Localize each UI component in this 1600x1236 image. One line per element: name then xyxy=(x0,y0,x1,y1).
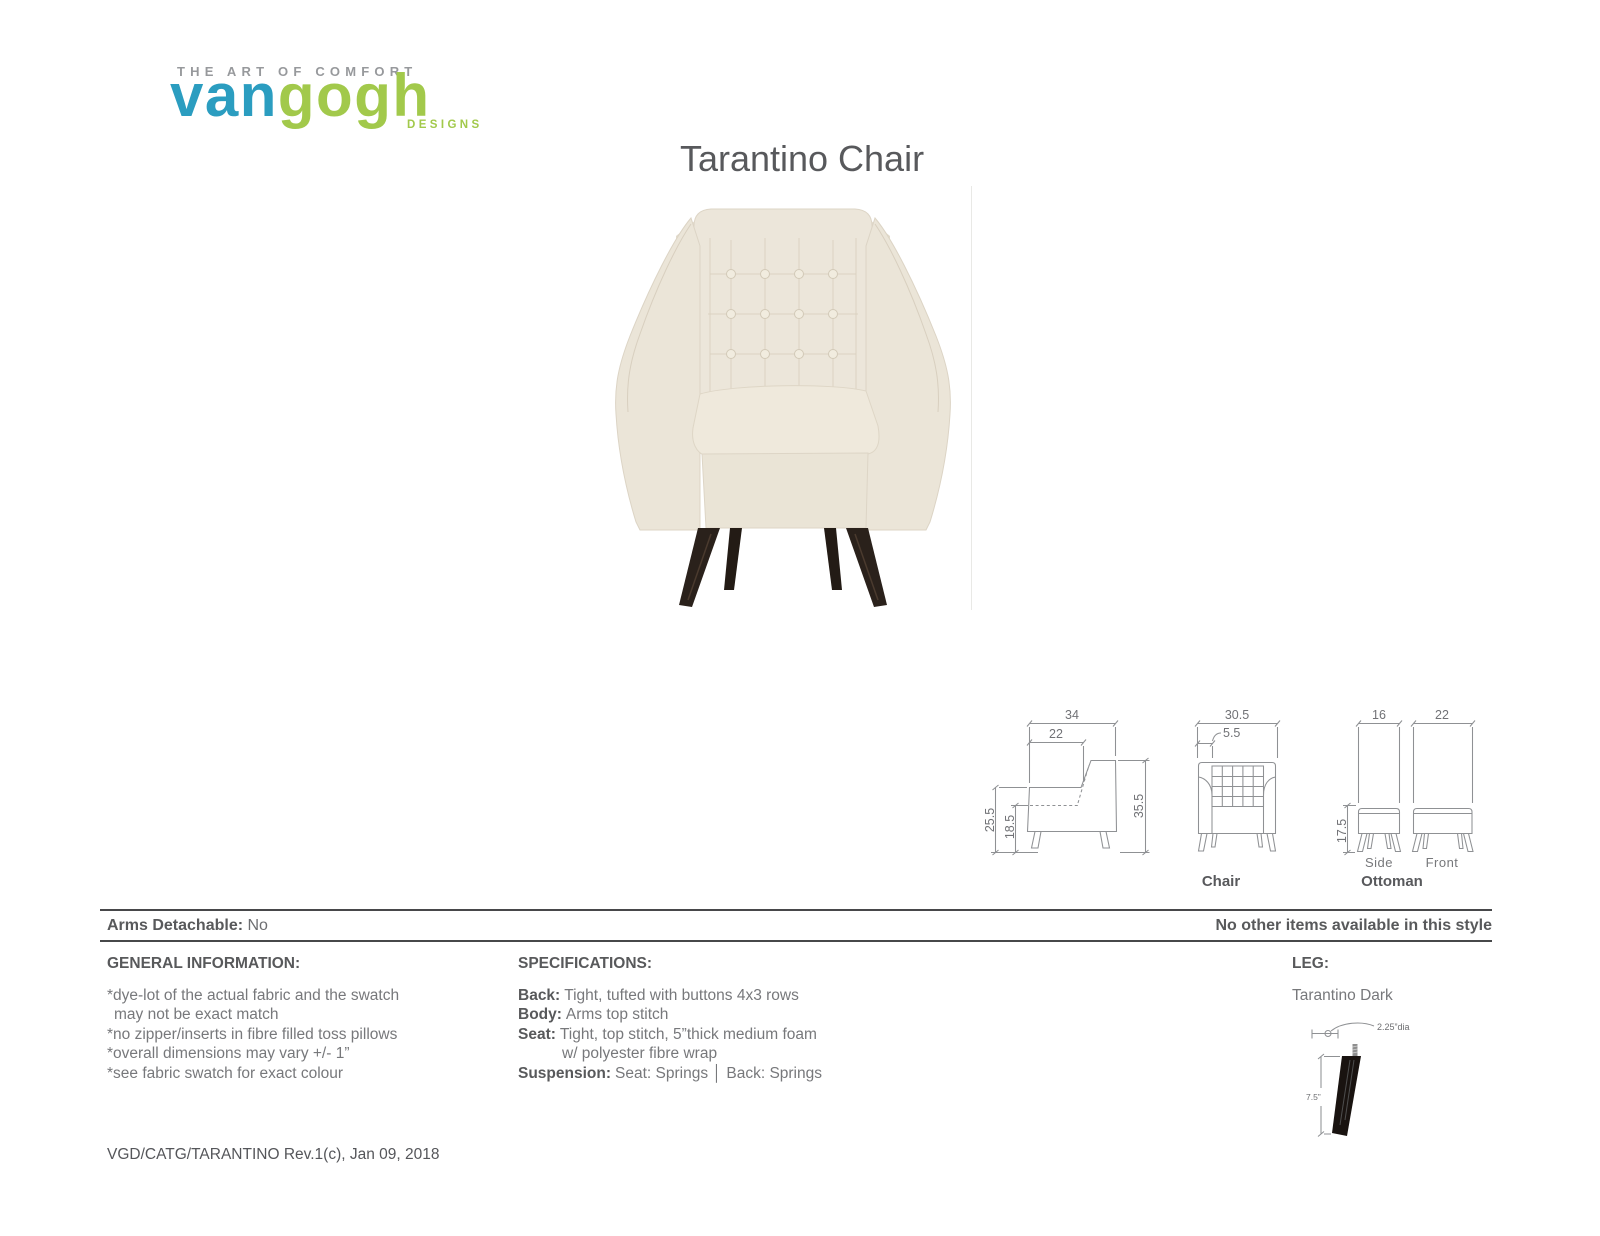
leg-diameter-label: 2.25”dia xyxy=(1377,1022,1410,1032)
spec-row: Suspension:Seat: Springs │ Back: Springs xyxy=(518,1064,958,1084)
seat-base xyxy=(702,453,868,528)
chair-front-view: 30.5 5.5 xyxy=(1195,708,1280,851)
spec-label: Seat: xyxy=(518,1026,556,1043)
ottoman-side-label: Side xyxy=(1365,855,1393,870)
spec-row-continuation: w/ polyester fibre wrap xyxy=(518,1044,958,1064)
spec-value: w/ polyester fibre wrap xyxy=(562,1045,717,1062)
logo-wordmark: vangogh xyxy=(170,66,431,126)
dim-side-seat-height: 18.5 xyxy=(1003,815,1017,839)
arms-detachable-row: Arms Detachable: No xyxy=(107,917,268,935)
general-information-section: GENERAL INFORMATION: *dye-lot of the act… xyxy=(107,954,507,1083)
leg-height-label: 7.5” xyxy=(1306,1092,1321,1102)
spec-value: Seat: Springs │ Back: Springs xyxy=(615,1065,822,1082)
chair-diagram-label: Chair xyxy=(1202,873,1241,890)
no-other-items-note: No other items available in this style xyxy=(1000,917,1492,935)
dim-front-total-width: 30.5 xyxy=(1225,708,1249,722)
general-info-line: *no zipper/inserts in fibre filled toss … xyxy=(107,1025,507,1045)
spec-value: Tight, top stitch, 5”thick medium foam xyxy=(560,1026,817,1043)
dim-ottoman-front-width: 22 xyxy=(1435,708,1449,722)
dim-ottoman-height: 17.5 xyxy=(1335,819,1349,843)
spec-row: Seat:Tight, top stitch, 5”thick medium f… xyxy=(518,1025,958,1045)
dim-front-arm-width: 5.5 xyxy=(1223,726,1240,740)
leg-name: Tarantino Dark xyxy=(1292,986,1522,1006)
dim-side-seat-depth: 22 xyxy=(1049,727,1063,741)
general-info-line: *dye-lot of the actual fabric and the sw… xyxy=(107,986,507,1006)
leg-diagram: 2.25”dia 7.5” xyxy=(1300,1020,1460,1140)
chair-side-view: 34 22 25.5 18.5 35.5 xyxy=(983,708,1150,855)
ottoman-front-view: 22 Front xyxy=(1411,708,1475,870)
arms-detachable-label: Arms Detachable: xyxy=(107,917,243,934)
dim-side-arm-height: 25.5 xyxy=(983,808,997,832)
general-information-header: GENERAL INFORMATION: xyxy=(107,954,507,974)
spec-row: Body:Arms top stitch xyxy=(518,1005,958,1025)
leg-section: LEG: Tarantino Dark xyxy=(1292,954,1522,1005)
general-info-line: *see fabric swatch for exact colour xyxy=(107,1064,507,1084)
spec-label: Body: xyxy=(518,1006,562,1023)
page-title: Tarantino Chair xyxy=(602,138,1002,180)
dim-ottoman-side-depth: 16 xyxy=(1372,708,1386,722)
ottoman-side-view: 16 17.5 Side xyxy=(1335,708,1402,870)
dimension-diagrams: 34 22 25.5 18.5 35.5 30.5 xyxy=(950,685,1510,900)
logo-word-van: van xyxy=(170,62,278,129)
general-info-line: may not be exact match xyxy=(107,1005,507,1025)
chair-photo xyxy=(594,186,972,610)
spec-label: Suspension: xyxy=(518,1065,611,1082)
leg-diameter-dim xyxy=(1312,1023,1374,1038)
spec-value: Arms top stitch xyxy=(566,1006,669,1023)
leg-shape xyxy=(1332,1056,1361,1136)
divider-bottom xyxy=(100,940,1492,942)
logo-designs-label: DESIGNS xyxy=(407,119,483,131)
specifications-section: SPECIFICATIONS: Back:Tight, tufted with … xyxy=(518,954,958,1083)
specifications-header: SPECIFICATIONS: xyxy=(518,954,958,974)
dim-side-total-height: 35.5 xyxy=(1132,794,1146,818)
seat-cushion xyxy=(693,386,879,456)
ottoman-front-label: Front xyxy=(1426,855,1459,870)
spec-row: Back:Tight, tufted with buttons 4x3 rows xyxy=(518,986,958,1006)
dim-side-total-depth: 34 xyxy=(1065,708,1079,722)
ottoman-diagram-label: Ottoman xyxy=(1361,873,1423,890)
divider-top xyxy=(100,909,1492,911)
arms-detachable-value: No xyxy=(248,917,268,934)
document-reference: VGD/CATG/TARANTINO Rev.1(c), Jan 09, 201… xyxy=(107,1146,439,1164)
spec-label: Back: xyxy=(518,987,560,1004)
spec-value: Tight, tufted with buttons 4x3 rows xyxy=(564,987,799,1004)
leg-header: LEG: xyxy=(1292,954,1522,974)
spec-sheet-page: THE ART OF COMFORT vangogh DESIGNS Taran… xyxy=(0,0,1600,1236)
general-info-line: *overall dimensions may vary +/- 1” xyxy=(107,1044,507,1064)
